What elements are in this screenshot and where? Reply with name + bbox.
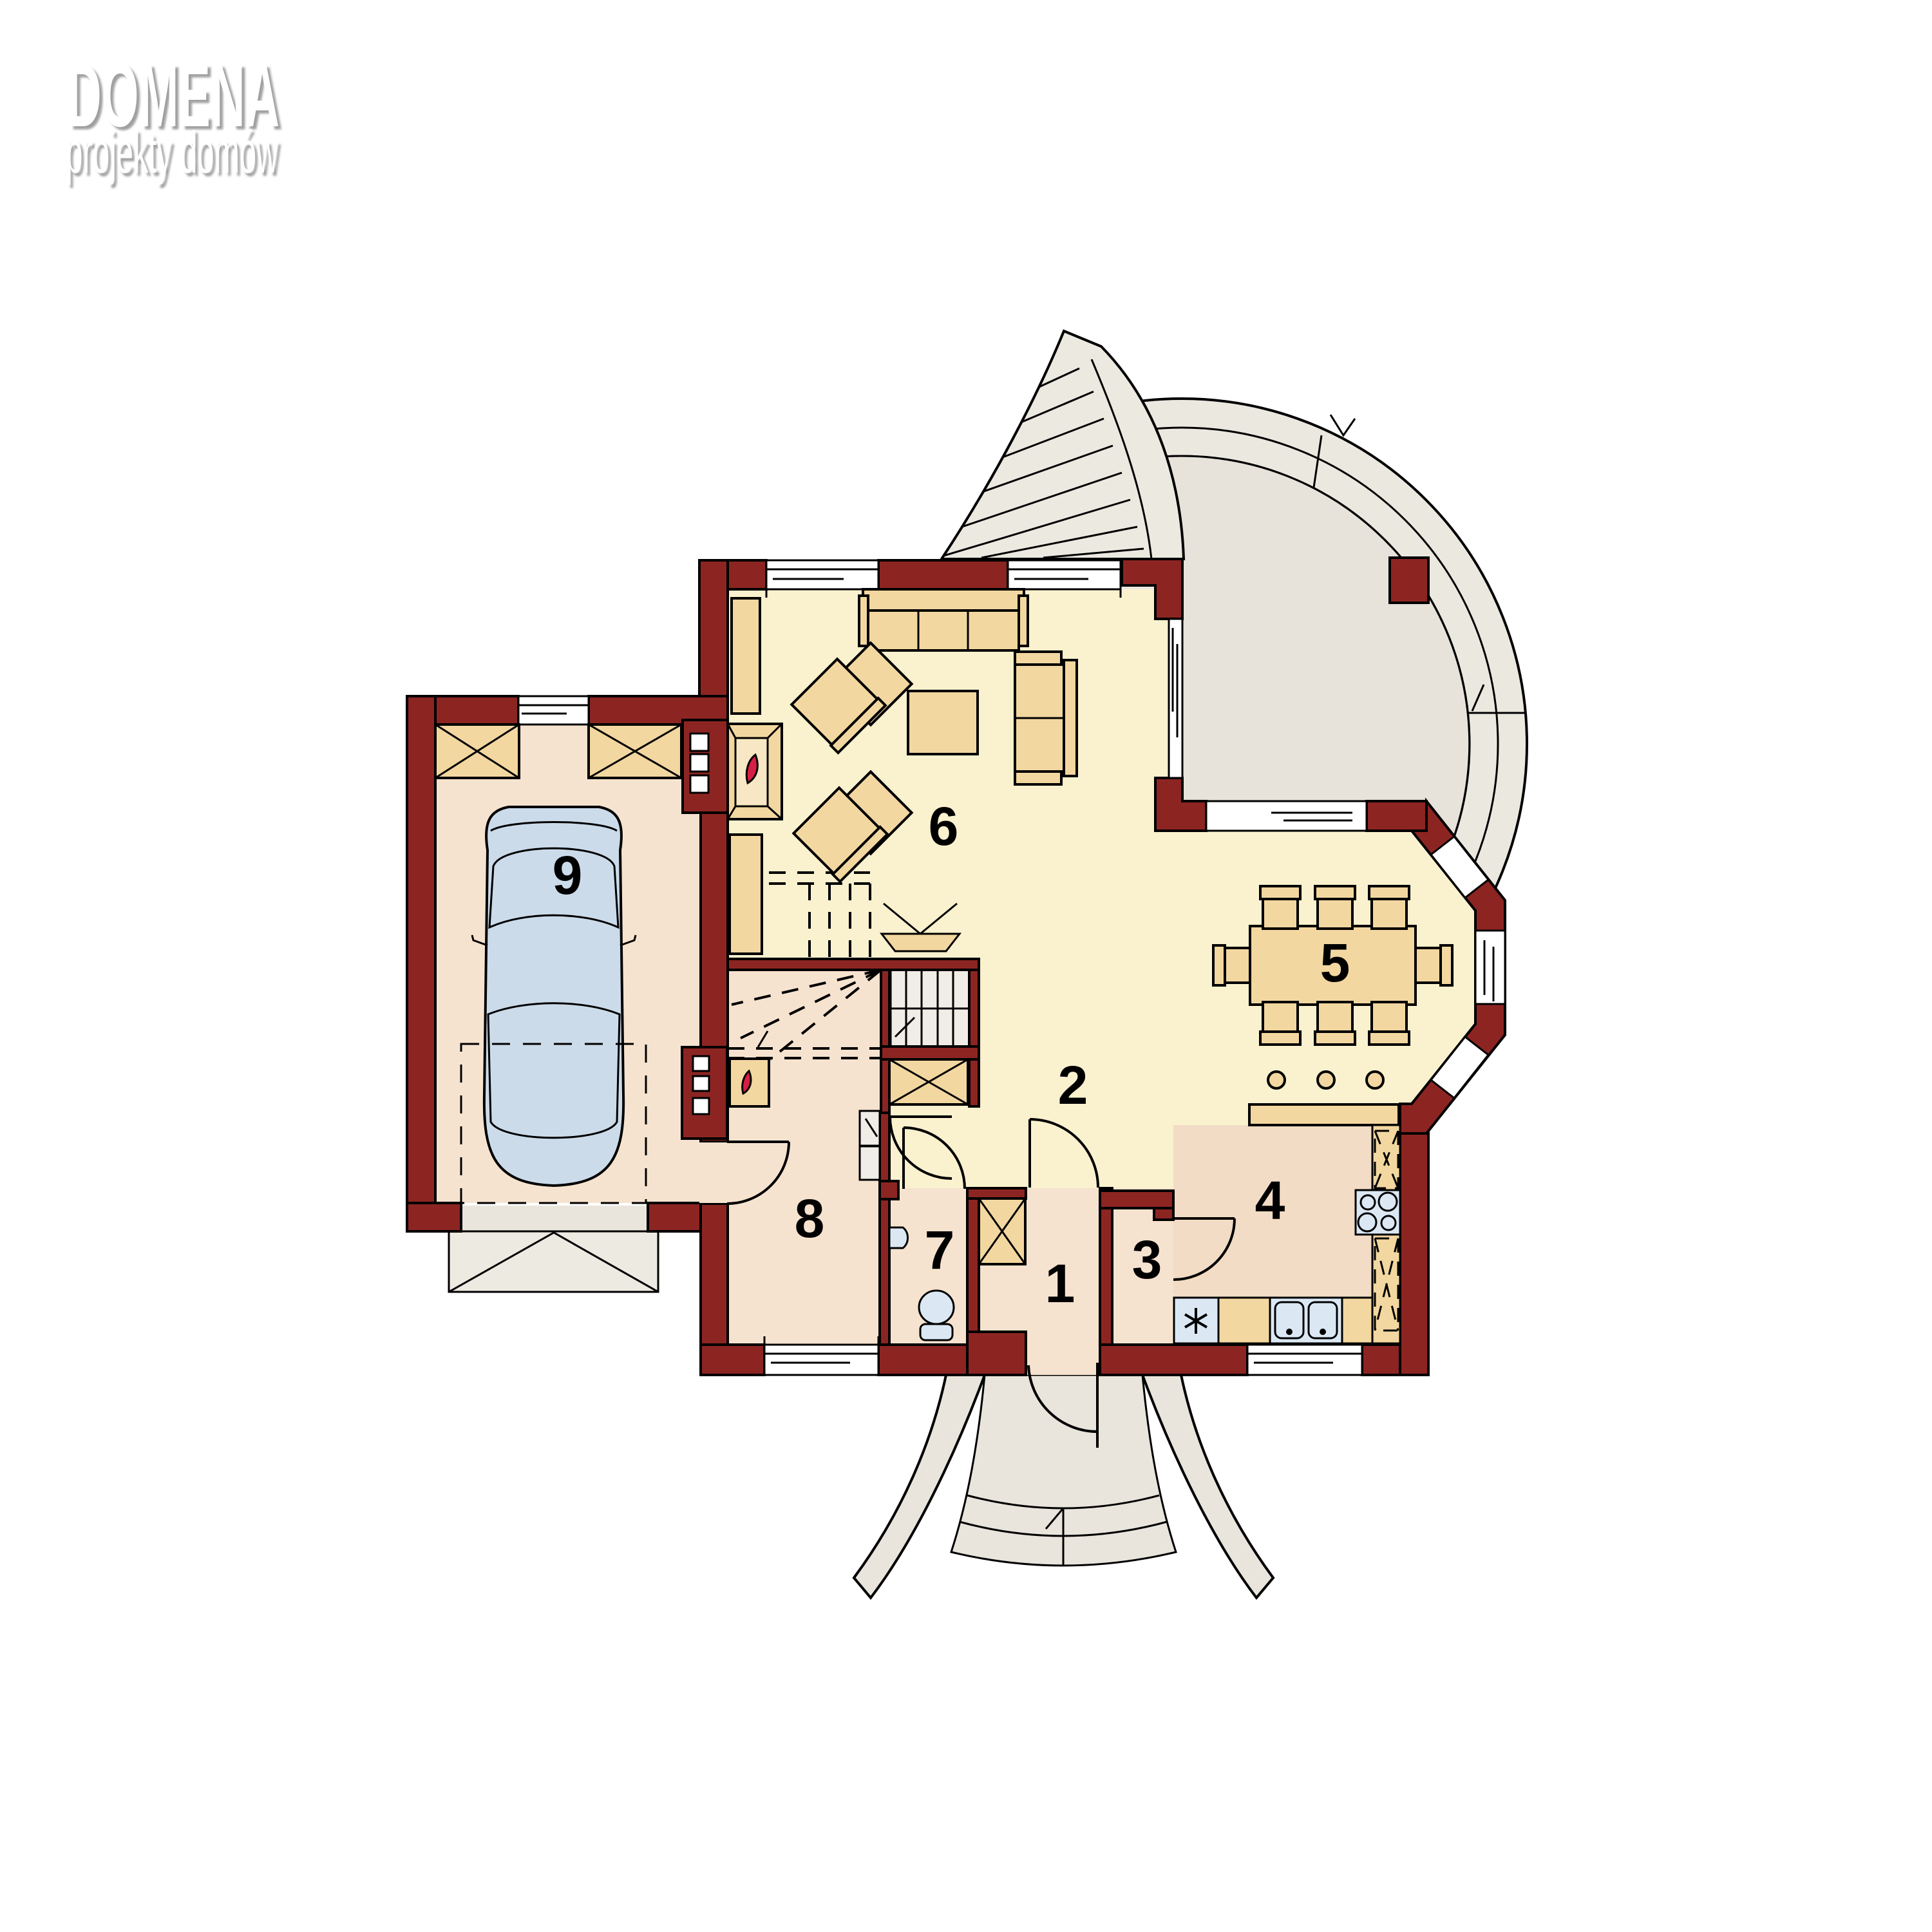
svg-text:5: 5 bbox=[1320, 933, 1350, 993]
svg-text:3: 3 bbox=[1132, 1229, 1162, 1290]
svg-text:9: 9 bbox=[553, 845, 583, 905]
svg-text:4: 4 bbox=[1255, 1170, 1285, 1231]
svg-text:1: 1 bbox=[1045, 1253, 1075, 1314]
svg-text:2: 2 bbox=[1058, 1055, 1088, 1115]
svg-text:7: 7 bbox=[925, 1220, 955, 1280]
svg-text:6: 6 bbox=[929, 796, 959, 857]
svg-text:8: 8 bbox=[795, 1188, 825, 1249]
svg-text:projekty domów: projekty domów bbox=[66, 120, 278, 185]
